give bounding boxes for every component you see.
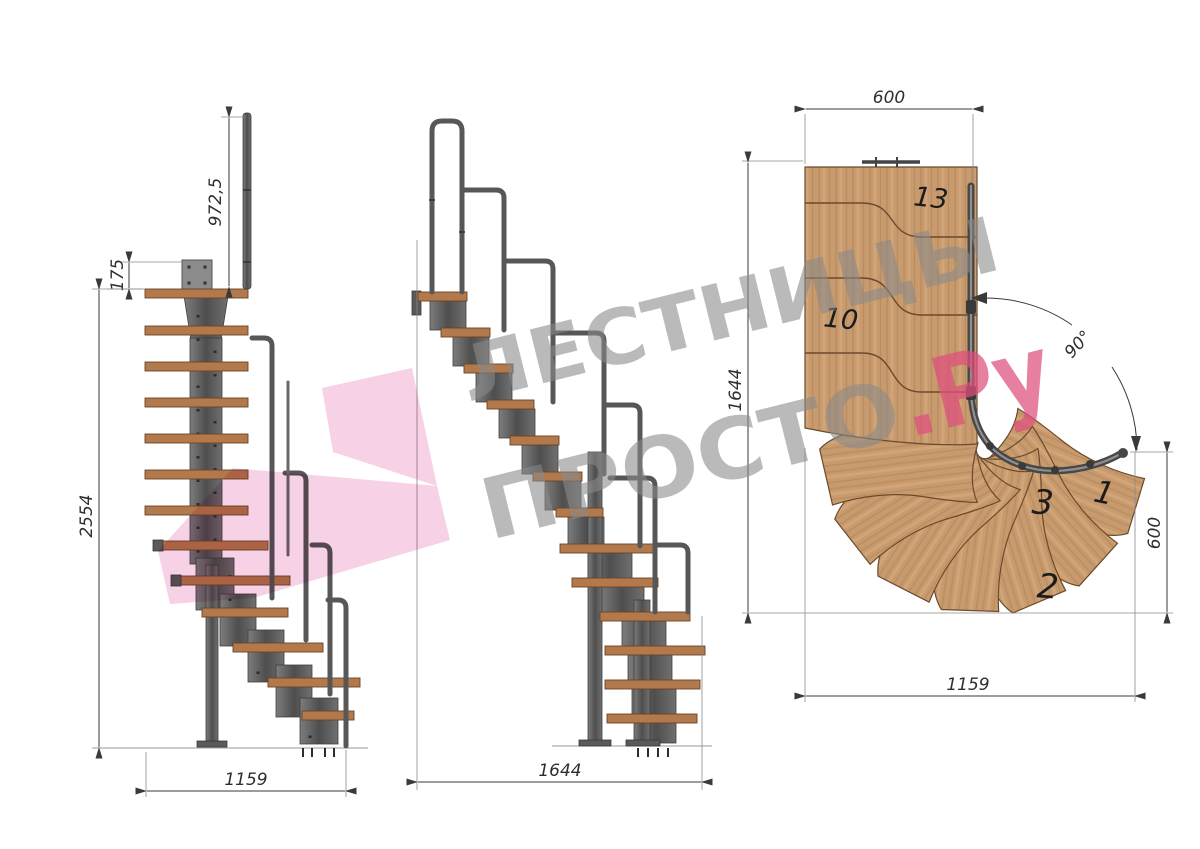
- dim-label: 175: [108, 259, 128, 291]
- drawing-canvas: 972,5 175 2554 1159: [0, 0, 1200, 849]
- dim-label: 2554: [77, 494, 97, 537]
- anchor-bolts: [303, 748, 334, 757]
- step-label-3: 3: [1031, 482, 1055, 523]
- angle-label: 90°: [1061, 327, 1096, 363]
- step-label-10: 10: [822, 302, 859, 336]
- dim-plan-side-width: 600: [1130, 452, 1173, 612]
- dim-plate-offset: 175: [108, 259, 182, 291]
- handrail-loop: [432, 121, 462, 292]
- post-base-plate: [197, 741, 227, 747]
- step-label-2: 2: [1036, 566, 1060, 607]
- support-post: [588, 452, 602, 742]
- anchor-bolts: [638, 748, 668, 757]
- front-elevation-view: 1644: [412, 121, 712, 790]
- staircase-technical-drawing: 972,5 175 2554 1159: [0, 0, 1200, 849]
- angle-arc: 90°: [971, 292, 1141, 452]
- wall-plate: [182, 260, 212, 290]
- dim-label: 972,5: [206, 178, 226, 227]
- step-label-13: 13: [912, 181, 949, 215]
- dim-label: 600: [1145, 517, 1165, 549]
- plan-view: 90° 13 10 3 1 2 600 1644 600: [726, 88, 1173, 702]
- post-base-plate: [579, 740, 611, 746]
- dim-label: 1159: [224, 770, 267, 790]
- dim-total-height: 2554: [77, 289, 143, 747]
- side-elevation-view: 972,5 175 2554 1159: [77, 113, 368, 797]
- dim-label: 1644: [726, 368, 746, 411]
- post-base-plate-2: [626, 740, 660, 746]
- dim-side-length: 1159: [146, 750, 346, 797]
- dim-label: 1159: [946, 675, 989, 695]
- dim-label: 1644: [538, 761, 581, 781]
- dim-label: 600: [873, 88, 905, 108]
